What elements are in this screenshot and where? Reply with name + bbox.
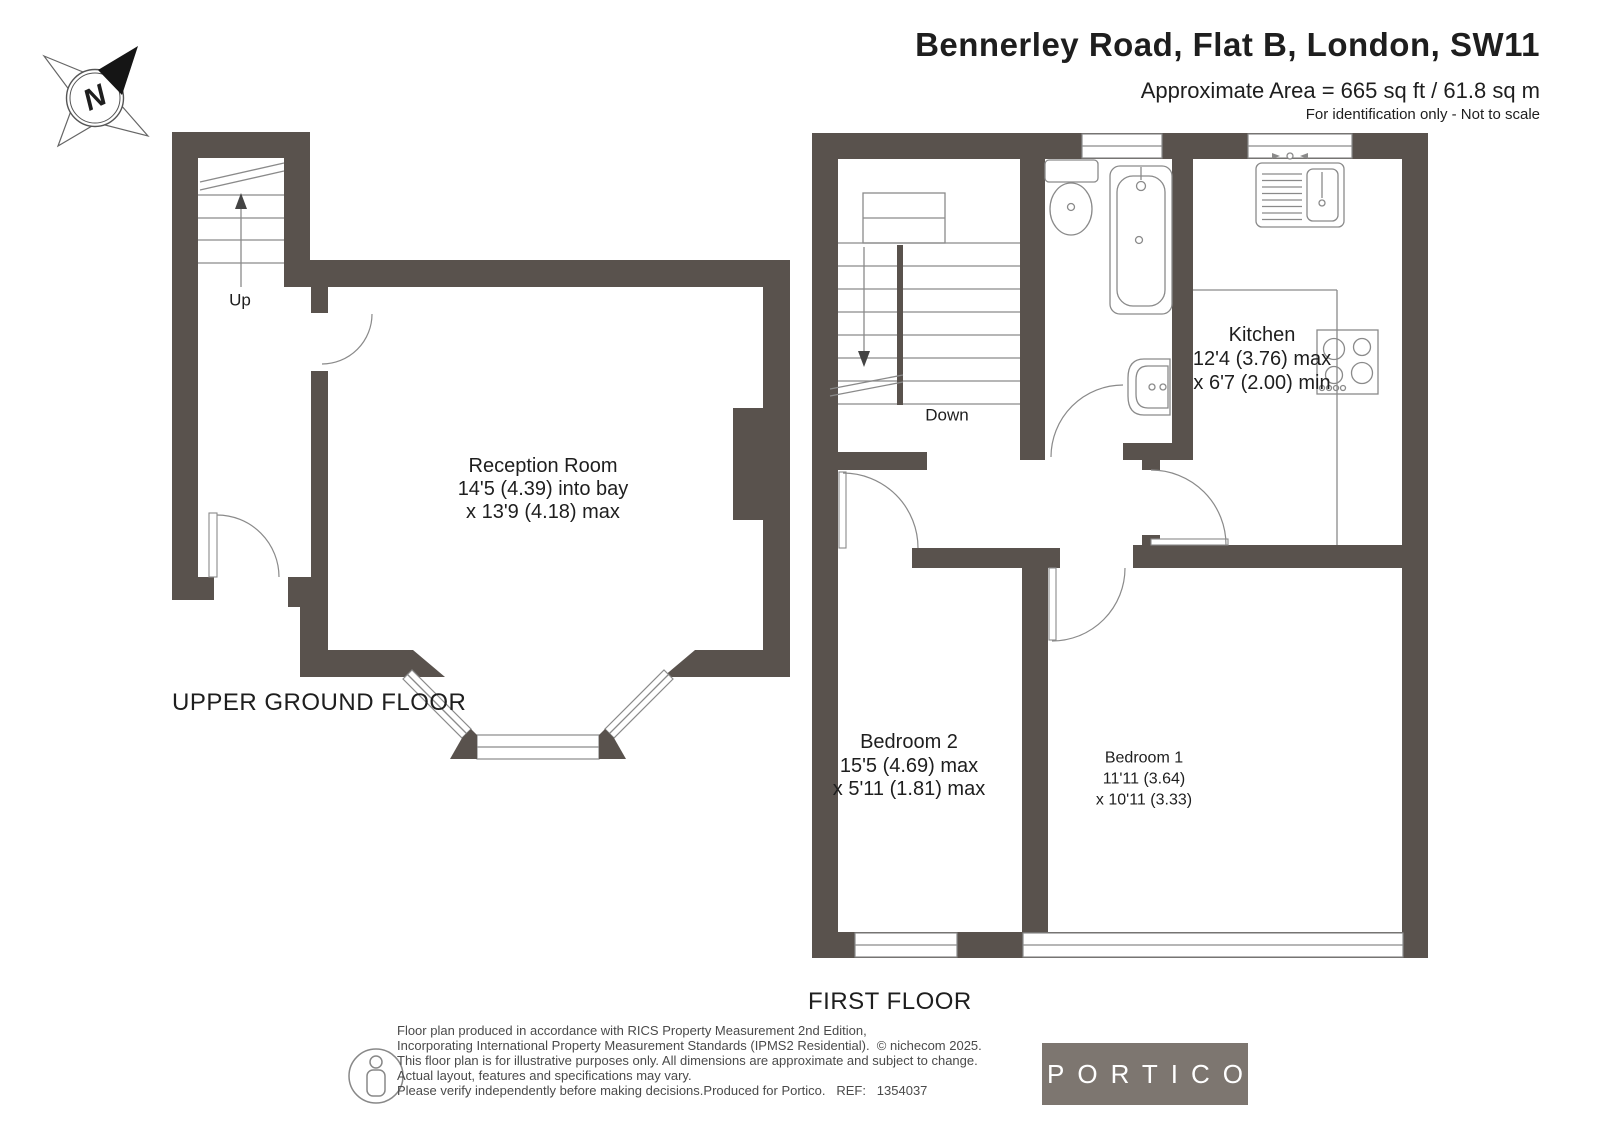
kitchen-door <box>1151 470 1228 545</box>
basin-icon <box>1128 359 1170 415</box>
bedroom-divider-wall <box>1022 568 1048 932</box>
room-dim: x 13'9 (4.18) max <box>466 501 620 523</box>
kitchen-window <box>1248 134 1352 158</box>
sink-unit-icon <box>1256 153 1344 227</box>
bathroom-window <box>1082 134 1162 158</box>
portico-logo: PORTICO <box>1042 1043 1248 1105</box>
upper-ground-floor-plan: Up Reception Room 14'5 (4.39) into bay x… <box>172 132 790 759</box>
disclaimer-line: Incorporating International Property Mea… <box>397 1038 982 1053</box>
bathtub-icon <box>1110 166 1172 314</box>
room-name: Bedroom 1 <box>1105 750 1183 767</box>
first-floor-label: FIRST FLOOR <box>808 988 972 1015</box>
bedroom2-room: Bedroom 2 15'5 (4.69) max x 5'11 (1.81) … <box>833 731 985 800</box>
bedroom1-door <box>1049 568 1125 641</box>
kitchen-room: Kitchen 12'4 (3.76) max x 6'7 (2.00) min <box>1193 324 1331 394</box>
room-name: Reception Room <box>469 455 618 477</box>
disclaimer-line: This floor plan is for illustrative purp… <box>397 1053 982 1068</box>
disclaimer-line: Floor plan produced in accordance with R… <box>397 1023 982 1038</box>
room-name: Kitchen <box>1229 324 1296 346</box>
room-dim: 12'4 (3.76) max <box>1193 348 1331 370</box>
disclaimer-line: Please verify independently before makin… <box>397 1083 982 1098</box>
upper-ground-walls <box>172 132 790 677</box>
stairs-down-label: Down <box>925 406 968 425</box>
entrance-door <box>209 513 279 577</box>
staircase-up <box>198 163 284 287</box>
bedroom2-door <box>839 472 918 548</box>
person-icon <box>349 1049 403 1103</box>
room-dim: 11'11 (3.64) <box>1103 771 1186 788</box>
stairs-up-label: Up <box>229 291 251 310</box>
chimney-breast <box>733 408 763 520</box>
staircase-down <box>830 193 1020 405</box>
compass-icon: N <box>44 46 148 146</box>
room-name: Bedroom 2 <box>860 731 958 753</box>
bedroom2-window <box>855 933 957 957</box>
reception-door <box>322 314 372 364</box>
bedroom1-room: Bedroom 1 11'11 (3.64) x 10'11 (3.33) <box>1096 750 1192 809</box>
disclaimer-line: Actual layout, features and specificatio… <box>397 1068 982 1083</box>
room-dim: 14'5 (4.39) into bay <box>458 478 629 500</box>
room-dim: x 6'7 (2.00) min <box>1193 372 1330 394</box>
floorplan-page: Bennerley Road, Flat B, London, SW11 App… <box>0 0 1600 1131</box>
room-dim: x 10'11 (3.33) <box>1096 792 1192 809</box>
room-dim: x 5'11 (1.81) max <box>833 778 985 800</box>
reception-room: Reception Room 14'5 (4.39) into bay x 13… <box>458 455 629 523</box>
floorplan-drawing: N <box>0 0 1600 1131</box>
bathroom-door <box>1051 385 1123 457</box>
upper-ground-floor-label: UPPER GROUND FLOOR <box>172 689 466 716</box>
room-dim: 15'5 (4.69) max <box>840 755 978 777</box>
bedroom1-window <box>1023 933 1403 957</box>
first-floor-plan: Down <box>808 133 1428 1015</box>
toilet-icon <box>1045 160 1098 235</box>
disclaimer-text: Floor plan produced in accordance with R… <box>397 1023 982 1098</box>
down-arrow-icon <box>858 351 870 367</box>
